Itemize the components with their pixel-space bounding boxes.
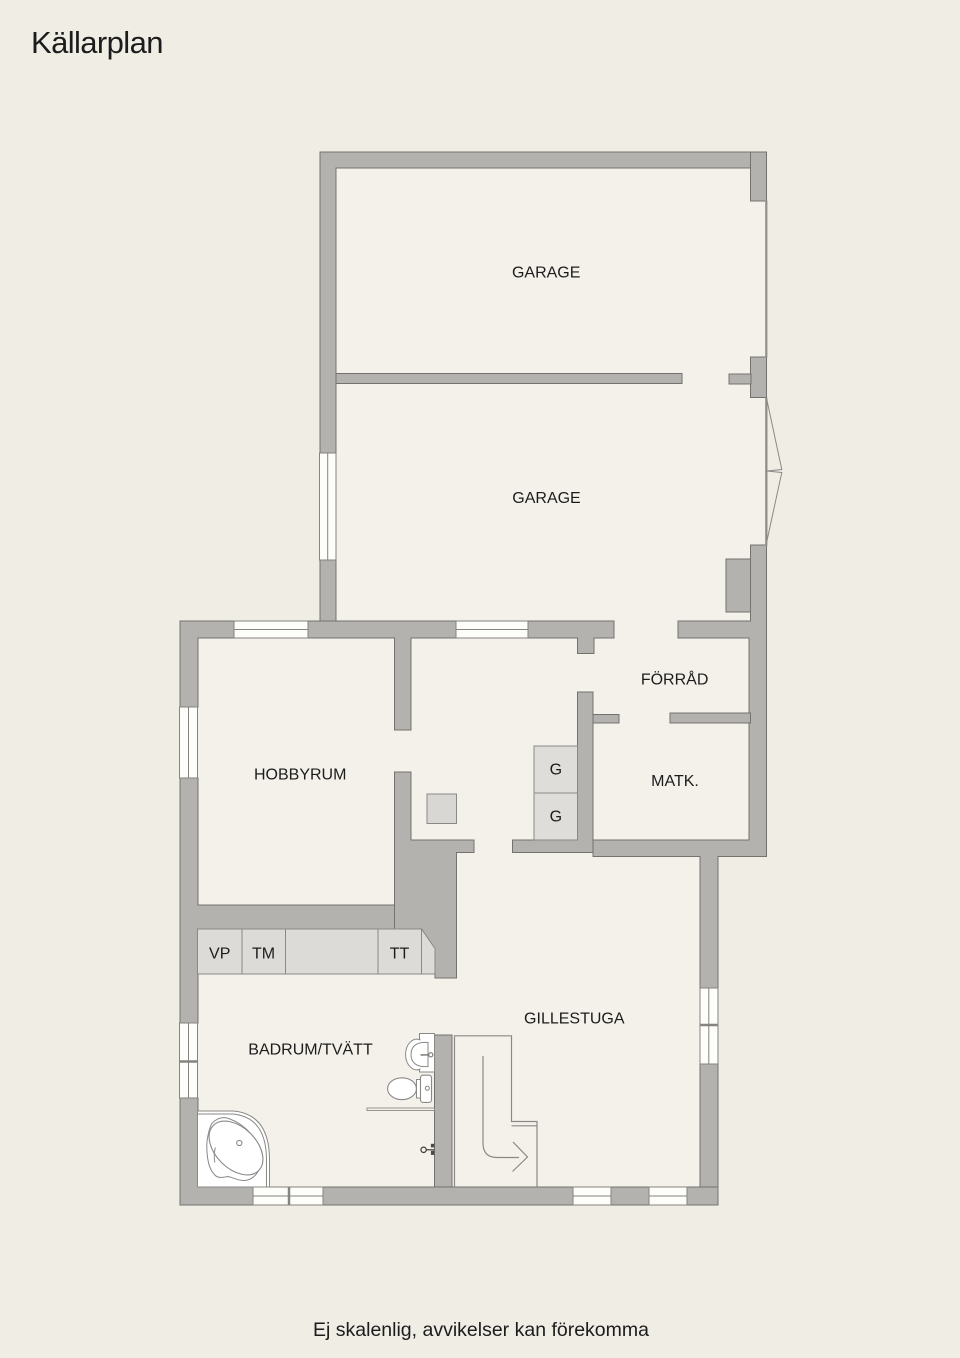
svg-text:MATK.: MATK. xyxy=(651,773,699,790)
svg-text:HOBBYRUM: HOBBYRUM xyxy=(254,767,346,784)
svg-text:TM: TM xyxy=(252,945,275,962)
svg-text:G: G xyxy=(550,809,562,826)
svg-text:TT: TT xyxy=(390,945,410,962)
svg-text:VP: VP xyxy=(209,945,230,962)
svg-text:FÖRRÅD: FÖRRÅD xyxy=(641,670,709,689)
svg-text:G: G xyxy=(550,762,562,779)
svg-text:Ej skalenlig, avvikelser kan f: Ej skalenlig, avvikelser kan förekomma xyxy=(313,1319,649,1341)
svg-text:GARAGE: GARAGE xyxy=(512,265,580,282)
svg-text:Källarplan: Källarplan xyxy=(31,25,163,60)
svg-text:GILLESTUGA: GILLESTUGA xyxy=(524,1010,625,1027)
svg-text:BADRUM/TVÄTT: BADRUM/TVÄTT xyxy=(248,1041,373,1059)
svg-text:GARAGE: GARAGE xyxy=(512,490,580,507)
